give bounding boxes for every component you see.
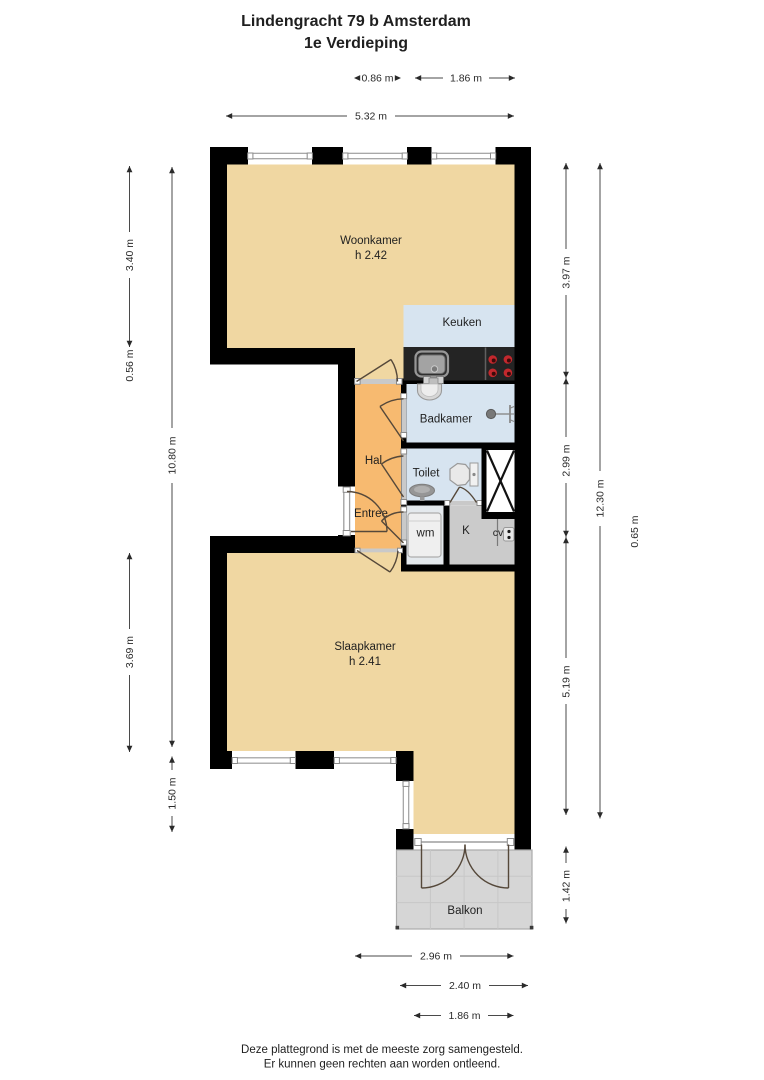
svg-text:1.50 m: 1.50 m <box>167 777 179 809</box>
svg-text:Hal: Hal <box>365 455 382 467</box>
svg-text:Lindengracht 79 b Amsterdam: Lindengracht 79 b Amsterdam <box>241 13 471 30</box>
svg-text:2.96 m: 2.96 m <box>420 951 452 963</box>
svg-text:1e Verdieping: 1e Verdieping <box>304 35 408 52</box>
svg-text:0.65 m: 0.65 m <box>629 515 641 547</box>
svg-text:0.56 m: 0.56 m <box>124 349 136 381</box>
svg-text:Woonkamer: Woonkamer <box>340 235 402 247</box>
svg-text:1.86 m: 1.86 m <box>450 73 482 85</box>
svg-text:5.32 m: 5.32 m <box>355 111 387 123</box>
svg-text:1.86 m: 1.86 m <box>448 1010 480 1022</box>
svg-text:3.97 m: 3.97 m <box>561 256 573 288</box>
svg-text:2.40 m: 2.40 m <box>449 980 481 992</box>
svg-text:Balkon: Balkon <box>447 905 482 917</box>
svg-text:2.99 m: 2.99 m <box>561 444 573 476</box>
svg-text:Deze plattegrond is met de mee: Deze plattegrond is met de meeste zorg s… <box>241 1044 523 1056</box>
svg-text:cv: cv <box>493 527 504 539</box>
svg-text:10.80 m: 10.80 m <box>167 436 179 474</box>
svg-text:h 2.42: h 2.42 <box>355 250 387 262</box>
svg-text:wm: wm <box>416 528 435 540</box>
svg-text:1.42 m: 1.42 m <box>561 870 573 902</box>
svg-text:Badkamer: Badkamer <box>420 414 473 426</box>
svg-text:12.30 m: 12.30 m <box>595 479 607 517</box>
svg-text:K: K <box>462 525 470 537</box>
svg-text:5.19 m: 5.19 m <box>561 665 573 697</box>
svg-text:3.40 m: 3.40 m <box>124 239 136 271</box>
svg-text:Toilet: Toilet <box>413 468 441 480</box>
svg-text:0.86 m: 0.86 m <box>361 73 393 85</box>
svg-text:Slaapkamer: Slaapkamer <box>334 641 396 653</box>
svg-text:h 2.41: h 2.41 <box>349 656 381 668</box>
svg-text:3.69 m: 3.69 m <box>124 636 136 668</box>
svg-text:Er kunnen geen rechten aan wor: Er kunnen geen rechten aan worden ontlee… <box>264 1059 501 1071</box>
svg-text:Keuken: Keuken <box>442 317 481 329</box>
